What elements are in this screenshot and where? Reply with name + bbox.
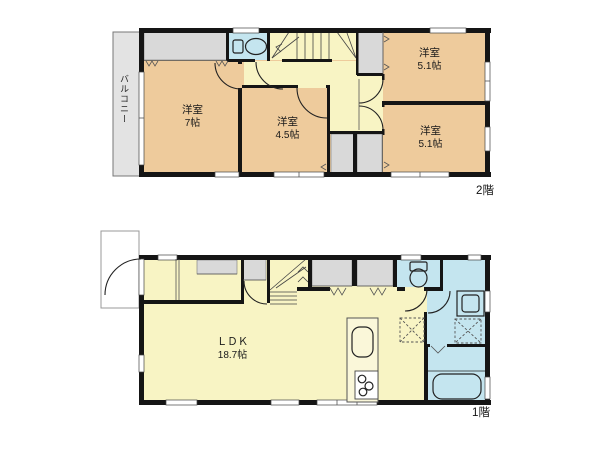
- room-label-nw: 洋室 7帖: [155, 104, 230, 130]
- kitchen-island: [347, 318, 378, 402]
- toilet-room-2f: [229, 32, 269, 60]
- floor-plan-drawing: [0, 0, 600, 450]
- toilet-room-1f: [397, 259, 440, 287]
- floor2-label: 2階: [462, 182, 508, 198]
- balcony-label: バルコニー: [118, 74, 131, 124]
- floor-plan: バルコニー 洋室 7帖 洋室 4.5帖 洋室 5.1帖 洋室 5.1帖 2階 Ｌ…: [0, 0, 600, 450]
- entrance-porch: [101, 231, 139, 308]
- floor1-plan: [101, 231, 491, 405]
- room-label-se: 洋室 5.1帖: [393, 125, 468, 151]
- stove-icon: [355, 371, 378, 399]
- floor1-label: 1階: [458, 404, 504, 420]
- room-label-center: 洋室 4.5帖: [250, 116, 325, 142]
- ldk-label: ＬＤＫ 18.7帖: [185, 336, 280, 362]
- room-label-ne: 洋室 5.1帖: [392, 47, 467, 73]
